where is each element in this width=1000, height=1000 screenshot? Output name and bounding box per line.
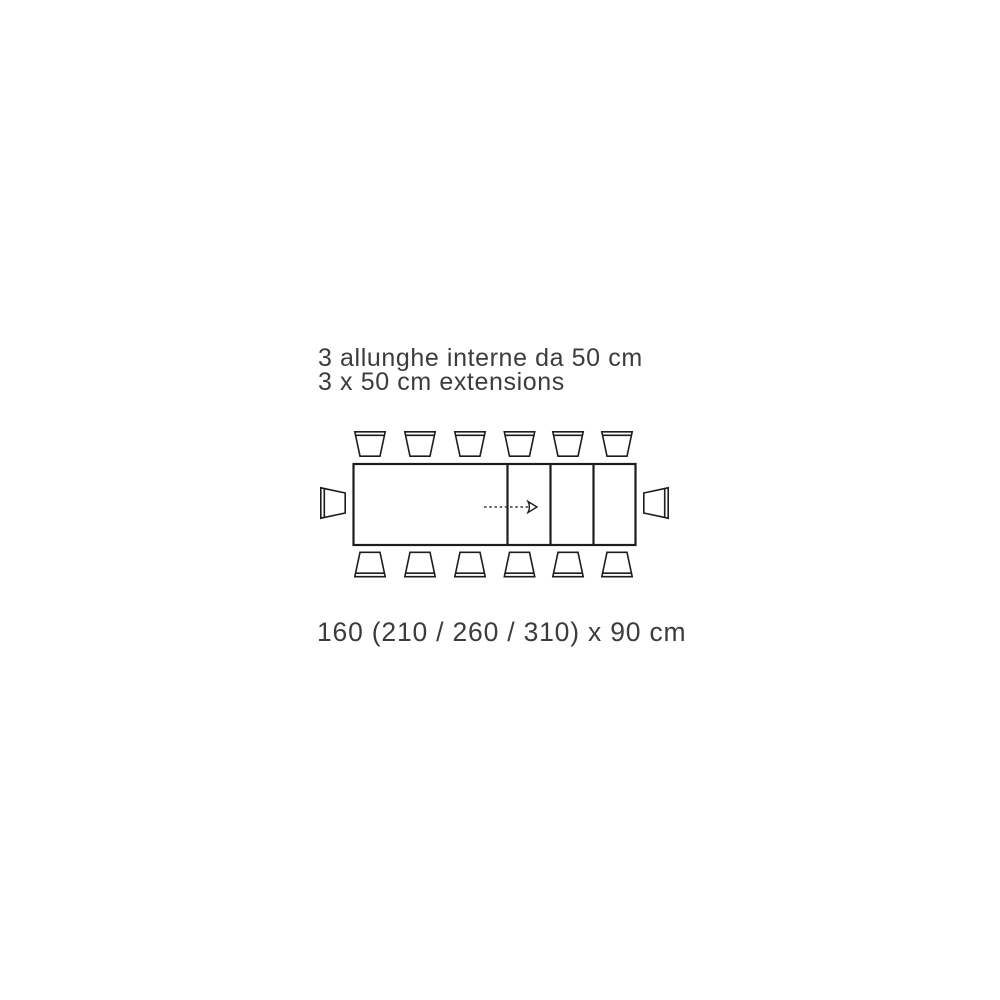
table-top [354,464,636,545]
chair-icon [553,432,583,456]
chair-icon [355,552,385,576]
chair-icon [553,552,583,576]
table-plan-drawing [0,0,1000,1000]
dimensions-label: 160 (210 / 260 / 310) x 90 cm [317,617,686,647]
chair-icon [405,432,435,456]
chair-icon-left [321,488,345,518]
chair-icon [355,432,385,456]
chair-icon [504,432,534,456]
chair-icon [455,432,485,456]
chair-icon [455,552,485,576]
product-dimension-diagram: 3 allunghe interne da 50 cm 3 x 50 cm ex… [0,0,1000,1000]
chair-icon [602,432,632,456]
seats-bottom-row [355,552,632,576]
chair-icon [504,552,534,576]
chair-icon [602,552,632,576]
seats-top-row [355,432,632,456]
chair-icon-right [644,488,668,518]
chair-icon [405,552,435,576]
